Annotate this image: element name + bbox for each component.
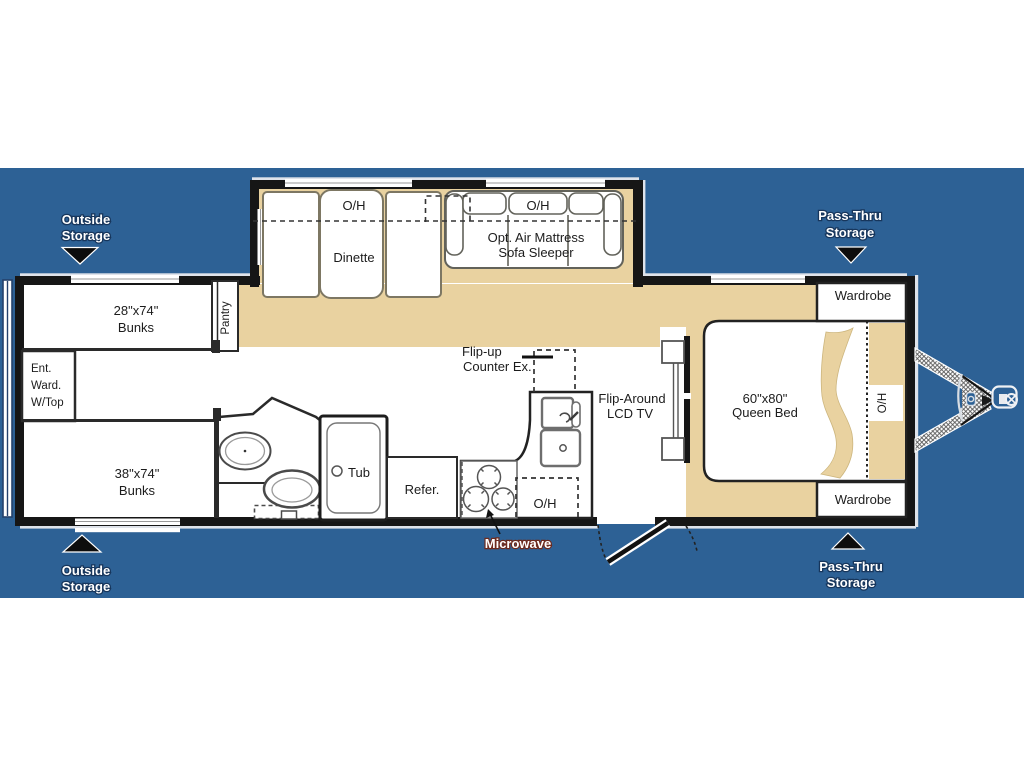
- svg-text:Pantry: Pantry: [220, 301, 232, 334]
- svg-text:Queen Bed: Queen Bed: [732, 405, 798, 420]
- svg-text:Wardrobe: Wardrobe: [835, 288, 892, 303]
- svg-text:Flip-Around: Flip-Around: [598, 391, 665, 406]
- svg-text:60"x80": 60"x80": [743, 391, 788, 406]
- svg-text:W/Top: W/Top: [31, 397, 64, 409]
- svg-text:O/H: O/H: [526, 198, 549, 213]
- svg-text:Outside: Outside: [62, 212, 110, 227]
- svg-text:Storage: Storage: [827, 575, 875, 590]
- svg-text:O/H: O/H: [533, 496, 556, 511]
- svg-text:38"x74": 38"x74": [115, 466, 160, 481]
- svg-text:Wardrobe: Wardrobe: [835, 492, 892, 507]
- svg-text:Storage: Storage: [62, 579, 110, 594]
- svg-text:Ward.: Ward.: [31, 380, 61, 392]
- svg-text:Outside: Outside: [62, 563, 110, 578]
- svg-text:Pass-Thru: Pass-Thru: [819, 559, 883, 574]
- svg-text:Counter Ex.: Counter Ex.: [463, 359, 532, 374]
- svg-text:Pass-Thru: Pass-Thru: [818, 208, 882, 223]
- svg-text:Bunks: Bunks: [118, 320, 155, 335]
- svg-text:Bunks: Bunks: [119, 483, 156, 498]
- svg-text:Storage: Storage: [826, 225, 874, 240]
- svg-text:LCD TV: LCD TV: [607, 406, 653, 421]
- svg-text:O/H: O/H: [342, 198, 365, 213]
- svg-text:Tub: Tub: [348, 465, 370, 480]
- svg-text:Ent.: Ent.: [31, 363, 51, 375]
- svg-text:Flip-up: Flip-up: [462, 344, 502, 359]
- svg-text:Opt. Air Mattress: Opt. Air Mattress: [488, 230, 585, 245]
- svg-text:Storage: Storage: [62, 228, 110, 243]
- svg-text:Microwave: Microwave: [485, 536, 551, 551]
- svg-text:Dinette: Dinette: [333, 250, 374, 265]
- svg-text:O/H: O/H: [877, 393, 889, 413]
- svg-text:Sofa Sleeper: Sofa Sleeper: [498, 245, 574, 260]
- svg-text:Refer.: Refer.: [405, 482, 440, 497]
- svg-text:28"x74": 28"x74": [114, 303, 159, 318]
